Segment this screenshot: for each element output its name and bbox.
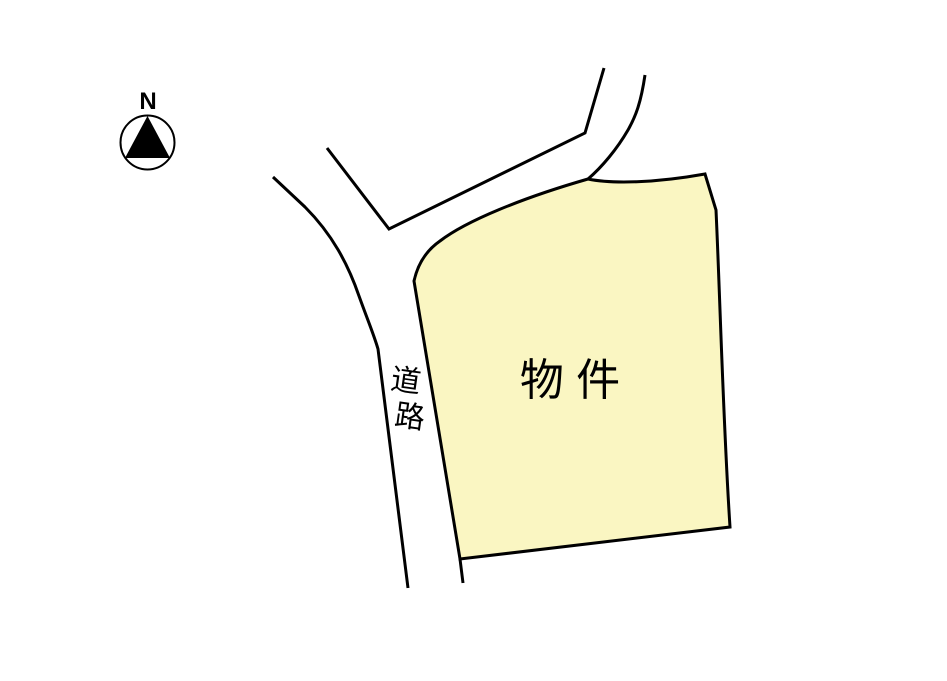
site-map-canvas: N 物 件 道 路: [0, 0, 947, 681]
compass: N: [121, 88, 175, 170]
road-edge-stub: [460, 559, 463, 583]
road-label: 道 路: [389, 363, 427, 436]
road-label-char-2: 路: [393, 399, 427, 436]
road-label-char-1: 道: [389, 363, 423, 400]
compass-north-label: N: [139, 88, 156, 115]
road-edge-left: [273, 177, 408, 588]
site-map: N 物 件 道 路: [0, 0, 947, 681]
property-label: 物 件: [520, 356, 620, 405]
